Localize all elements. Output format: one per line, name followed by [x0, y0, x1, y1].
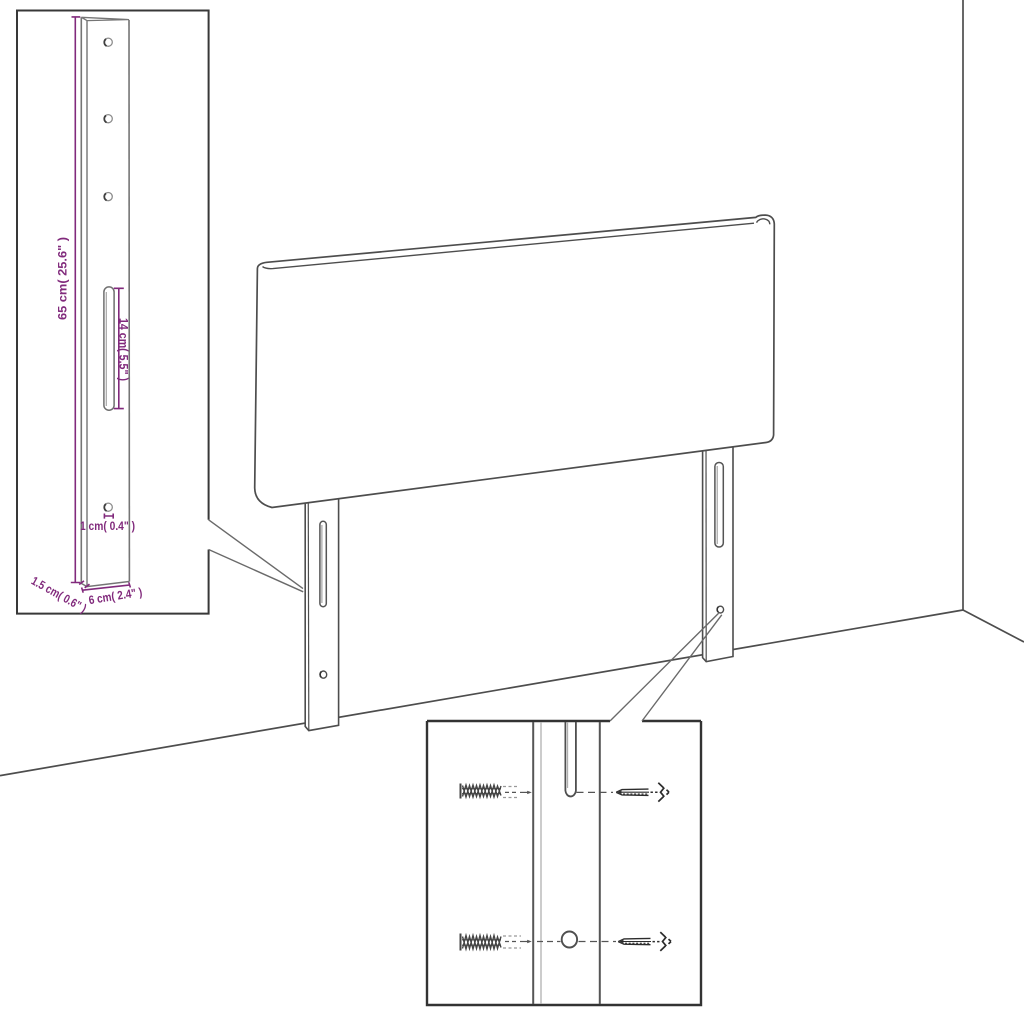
- svg-text:14 cm( 5.5" ): 14 cm( 5.5" ): [117, 318, 131, 381]
- svg-text:1 cm( 0.4" ): 1 cm( 0.4" ): [80, 519, 135, 533]
- svg-text:65 cm( 25.6" ): 65 cm( 25.6" ): [55, 237, 69, 320]
